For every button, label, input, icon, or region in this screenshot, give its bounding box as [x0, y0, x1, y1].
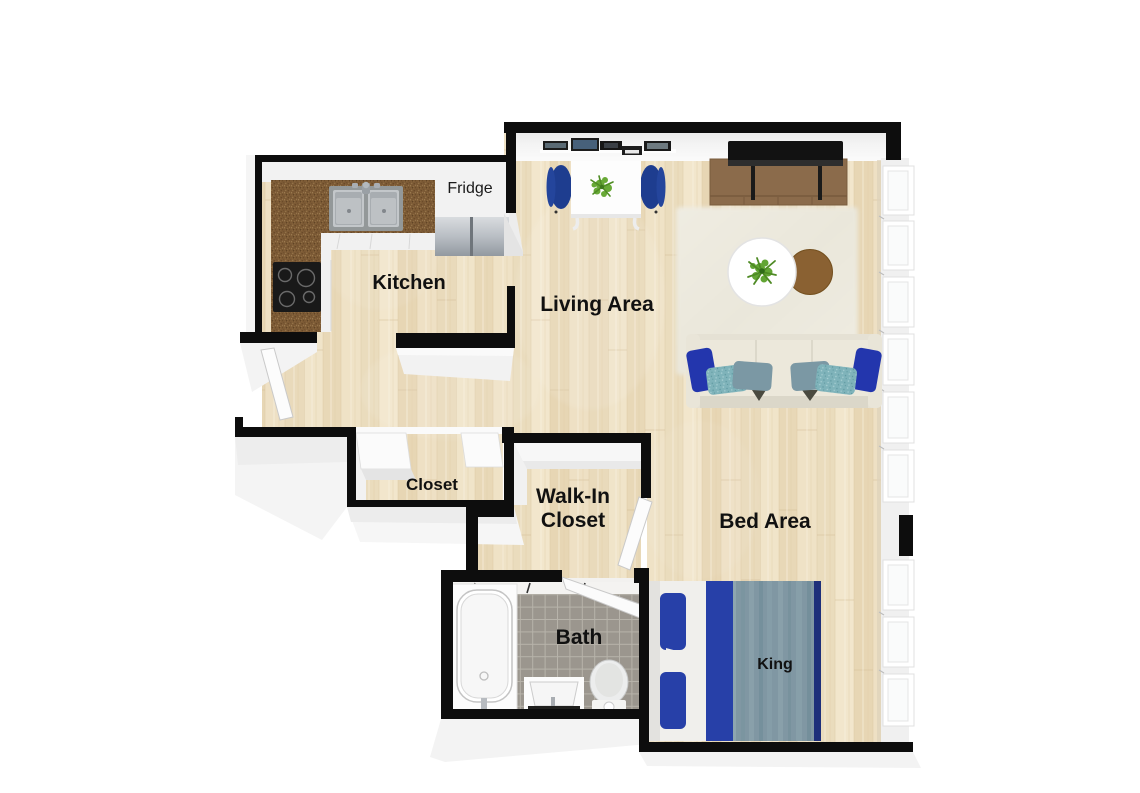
svg-text:Walk-In: Walk-In [536, 485, 610, 508]
svg-text:Closet: Closet [541, 509, 605, 532]
svg-text:Fridge: Fridge [447, 180, 492, 197]
svg-text:Closet: Closet [406, 475, 458, 494]
svg-text:King: King [757, 656, 793, 673]
svg-text:Bed Area: Bed Area [719, 510, 811, 533]
svg-text:Living Area: Living Area [540, 293, 654, 316]
svg-text:Bath: Bath [556, 626, 603, 649]
svg-text:Kitchen: Kitchen [372, 272, 445, 294]
